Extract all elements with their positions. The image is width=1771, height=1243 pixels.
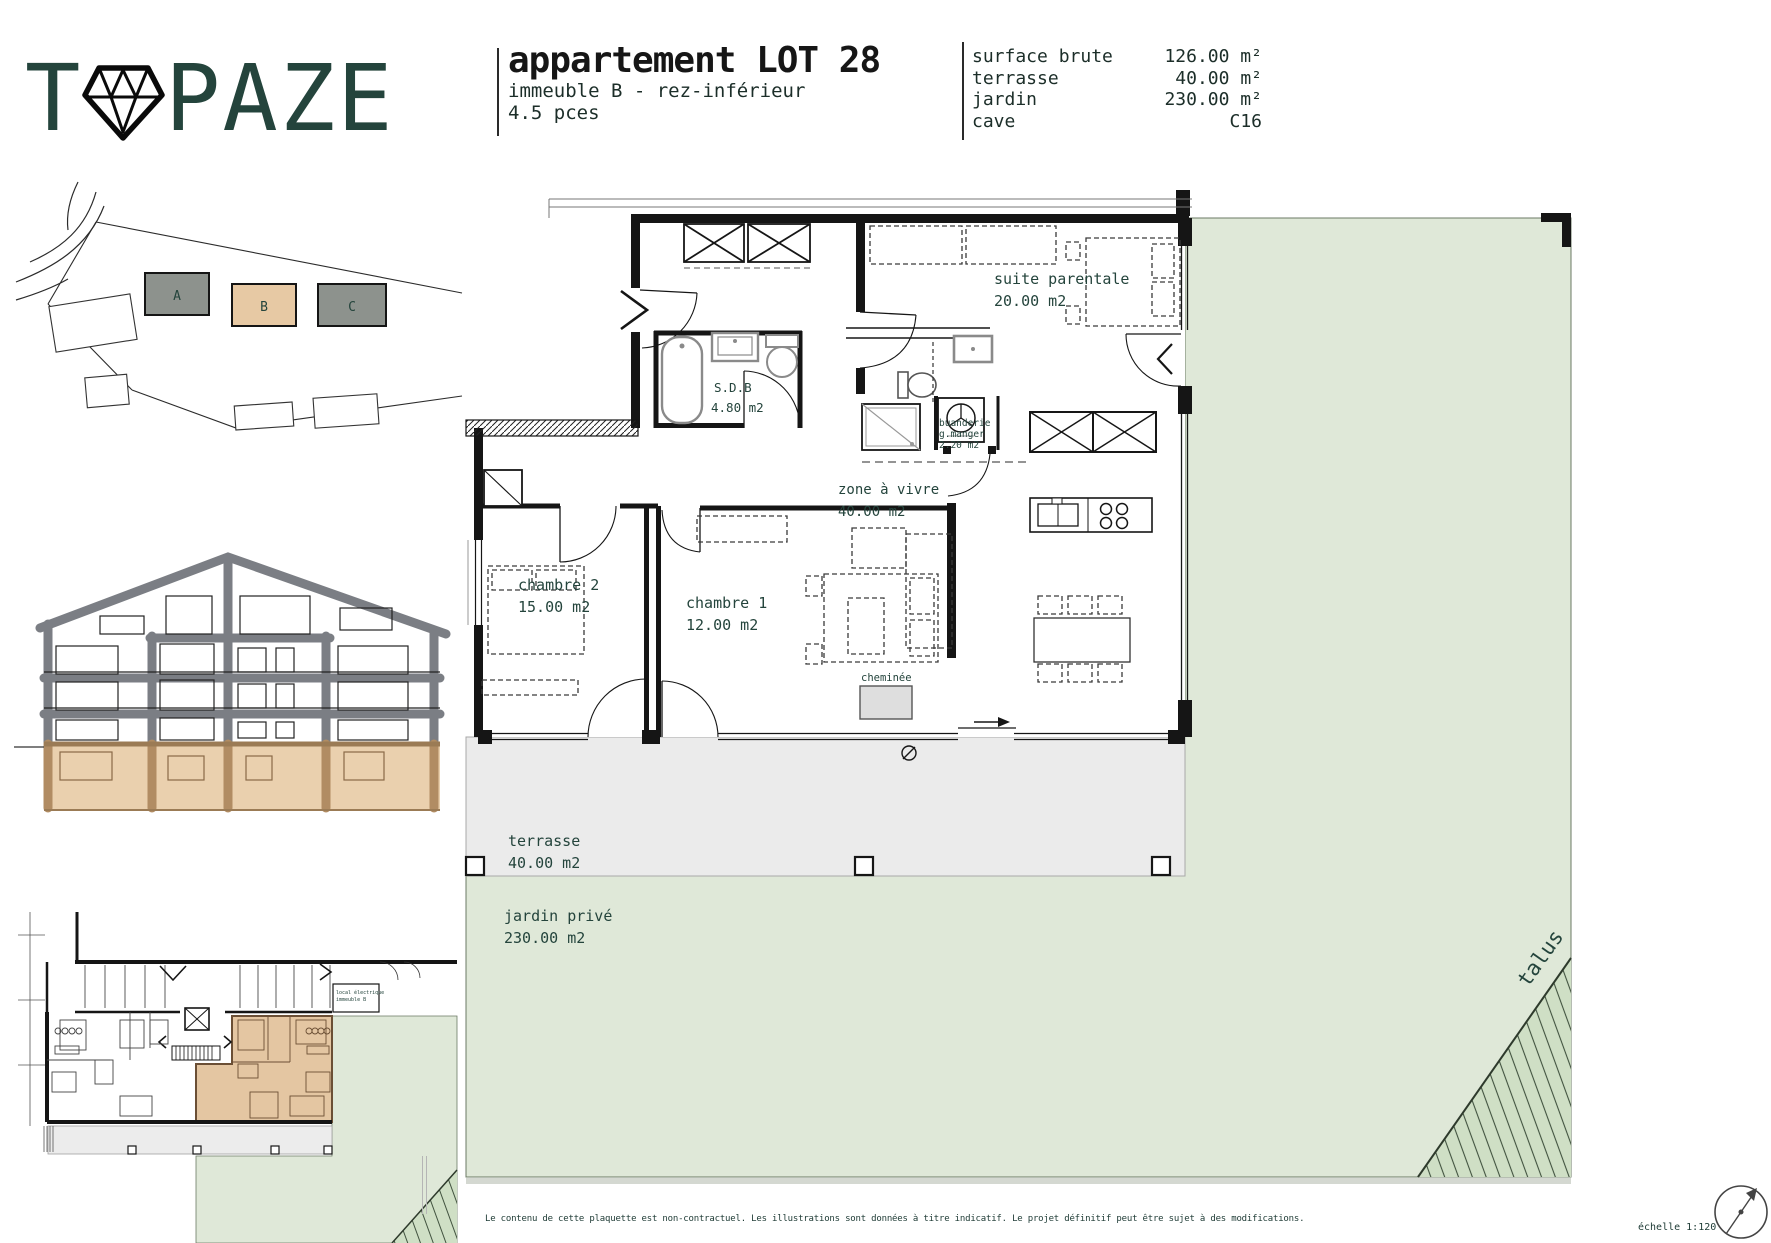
wc-icon xyxy=(898,372,908,398)
diamond-icon xyxy=(85,68,162,138)
overview-parking-stalls xyxy=(85,965,330,1008)
wardrobe-box xyxy=(484,470,522,506)
surface-row-label: surface brute xyxy=(972,46,1113,68)
bathtub-icon xyxy=(662,337,702,423)
surface-table-values: 126.00 m² 40.00 m² 230.00 m² C16 xyxy=(1108,46,1262,132)
logo-letter-t: T xyxy=(25,48,80,144)
overview-stairs-icon xyxy=(172,1046,220,1060)
terrace-label: terrasse xyxy=(508,832,580,850)
kitchen-fixtures xyxy=(1030,498,1152,532)
overview-local-electrique: local électrique immeuble B xyxy=(333,984,384,1012)
site-roads xyxy=(16,182,104,300)
room-label-suite: suite parentale xyxy=(994,270,1129,288)
room-label-chambre1: chambre 1 xyxy=(686,594,767,612)
surface-row-value: C16 xyxy=(1108,111,1262,133)
overview-floor-plan: local électrique immeuble B xyxy=(15,905,465,1243)
building-section-drawing xyxy=(12,545,457,825)
room-area-zone: 40.00 m2 xyxy=(838,504,905,520)
room-label-chambre2: chambre 2 xyxy=(518,576,599,594)
title-subtitle: immeuble B - rez-inférieur xyxy=(508,80,880,102)
main-floor-plan: talus terrasse 40.00 m2 jardin privé 230… xyxy=(460,178,1575,1243)
plaquette-sheet: T PAZE appartement LOT 28 immeuble B - r… xyxy=(0,0,1771,1243)
surface-table-labels: surface brute terrasse jardin cave xyxy=(972,46,1113,132)
apartment-floor xyxy=(478,218,1185,737)
surface-row-label: jardin xyxy=(972,89,1113,111)
logo-letters-paze: PAZE xyxy=(165,48,395,144)
site-building-a: A xyxy=(145,273,209,315)
room-label-buanderie: buanderie xyxy=(939,418,991,429)
fireplace-icon xyxy=(860,686,912,719)
surface-row-value: 40.00 m² xyxy=(1108,68,1262,90)
room-area-sdb: 4.80 m2 xyxy=(711,400,764,415)
disclaimer-text: Le contenu de cette plaquette est non-co… xyxy=(485,1214,1304,1224)
page-title: appartement LOT 28 xyxy=(508,42,880,80)
party-wall-hatched xyxy=(466,420,638,436)
title-divider xyxy=(497,48,499,136)
fireplace-label: cheminée xyxy=(861,672,912,684)
stair-x-strip xyxy=(1030,412,1156,452)
surface-row-label: cave xyxy=(972,111,1113,133)
surface-row-value: 230.00 m² xyxy=(1108,89,1262,111)
door-post xyxy=(988,446,996,454)
title-pieces: 4.5 pces xyxy=(508,102,880,124)
north-compass-icon xyxy=(1710,1180,1771,1243)
topaze-logo: T PAZE xyxy=(25,48,425,144)
wc-icon xyxy=(766,335,798,347)
section-highlight-floor xyxy=(44,744,440,810)
surface-row-value: 126.00 m² xyxy=(1108,46,1262,68)
fireplace: cheminée xyxy=(860,672,912,719)
svg-text:B: B xyxy=(260,300,268,315)
scale-label: échelle 1:120 xyxy=(1638,1222,1716,1233)
surface-row-label: terrasse xyxy=(972,68,1113,90)
garden-area-label: 230.00 m2 xyxy=(504,929,585,947)
room-label-buanderie2: g.manger xyxy=(939,429,985,440)
overview-furniture-left xyxy=(47,1012,168,1116)
overview-elevator-icon xyxy=(185,1008,209,1030)
svg-text:local électrique: local électrique xyxy=(336,989,384,996)
table-divider xyxy=(962,42,964,140)
room-area-chambre1: 12.00 m2 xyxy=(686,616,758,634)
overview-entry-arcs xyxy=(380,962,420,980)
site-building-b-highlighted: B xyxy=(232,284,296,326)
garden-shadow xyxy=(466,1177,1571,1184)
vertical-fine-print xyxy=(422,1156,423,1214)
room-label-zone: zone à vivre xyxy=(838,482,939,498)
garden-label: jardin privé xyxy=(504,907,612,925)
svg-text:C: C xyxy=(348,300,356,315)
room-label-sdb: S.D.B xyxy=(714,380,752,395)
site-plan: A B C xyxy=(15,180,465,480)
site-building-c: C xyxy=(318,284,386,326)
terrace-area-label: 40.00 m2 xyxy=(508,854,580,872)
vertical-fine-print xyxy=(426,1156,427,1214)
room-area-suite: 20.00 m2 xyxy=(994,292,1066,310)
title-block: appartement LOT 28 immeuble B - rez-infé… xyxy=(508,42,880,124)
overview-terrace xyxy=(48,1126,332,1154)
window-chambre2 xyxy=(468,540,485,625)
svg-text:A: A xyxy=(173,289,181,304)
room-area-buanderie: 2.20 m2 xyxy=(939,440,979,451)
svg-text:immeuble B: immeuble B xyxy=(336,997,366,1003)
section-structure xyxy=(40,557,446,744)
room-area-chambre2: 15.00 m2 xyxy=(518,598,590,616)
